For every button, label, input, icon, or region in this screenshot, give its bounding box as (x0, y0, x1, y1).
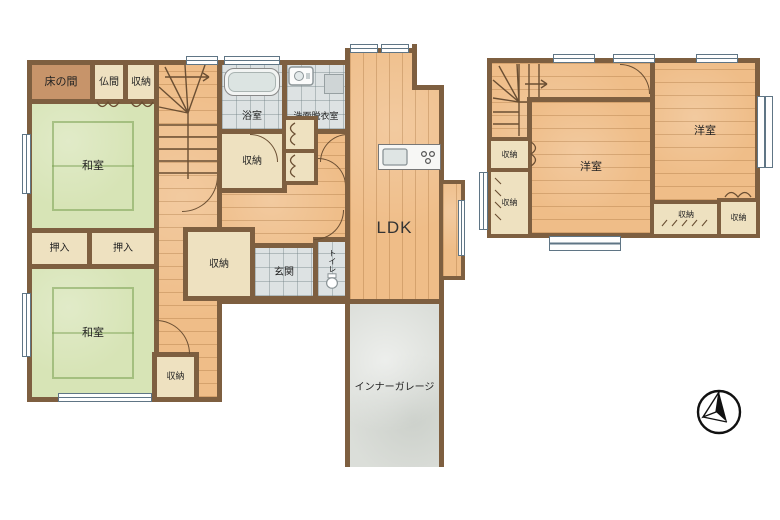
toilet-label: トイレ (327, 249, 336, 273)
room-tokonoma: 床の間 (27, 60, 95, 104)
storage-hall-label: 収納 (209, 259, 229, 270)
garage-label: インナーガレージ (355, 382, 435, 393)
tokonoma-label: 床の間 (45, 76, 78, 88)
oshiire-1-label: 押入 (50, 243, 70, 254)
staircase-1f (157, 63, 219, 179)
storage-2f-c-label: 収納 (678, 211, 694, 220)
room-washitsu-1: 和室 (27, 99, 159, 233)
hanger-pipe-icon (660, 219, 712, 227)
bifold-door-icon (724, 188, 752, 198)
kitchen-sink-icon (382, 148, 408, 166)
bay-window-right-2f (757, 96, 773, 168)
room-storage-hall: 収納 (183, 227, 255, 301)
room-storage-sw: 収納 (152, 352, 199, 402)
window (613, 54, 655, 63)
storage-top-label: 収納 (131, 77, 151, 88)
butsuma-label: 仏間 (99, 77, 119, 88)
window (186, 56, 218, 65)
storage-2f-d-label: 収納 (731, 214, 747, 223)
window (458, 200, 465, 256)
bay-window-bottom-2f (549, 236, 621, 251)
ldk-label: LDK (376, 219, 412, 238)
window (224, 56, 280, 65)
room-bedroom-right: 洋室 (650, 58, 760, 205)
ldk-notch (412, 44, 444, 90)
storage-sw-label: 収納 (166, 372, 184, 382)
storage-2f-a-label: 収納 (502, 151, 518, 160)
north-arrow-compass-icon (693, 386, 745, 438)
genkan-label: 玄関 (274, 267, 294, 278)
room-washitsu-2: 和室 (27, 264, 159, 402)
room-oshiire-2: 押入 (87, 228, 159, 269)
bifold-door-icon (286, 154, 296, 178)
room-storage-top: 収納 (123, 60, 159, 104)
bedroom-right-label: 洋室 (694, 125, 716, 137)
window (350, 44, 378, 53)
oshiire-2-label: 押入 (113, 243, 133, 254)
window (696, 54, 738, 63)
window (22, 134, 31, 194)
room-oshiire-1: 押入 (27, 228, 92, 269)
room-storage-2f-c: 収納 (650, 200, 722, 238)
window (381, 44, 409, 53)
washitsu-2-label: 和室 (82, 327, 104, 339)
washing-machine-pan-icon (324, 74, 344, 94)
bifold-door-icon (96, 101, 120, 111)
room-genkan: 玄関 (250, 243, 318, 301)
window (553, 54, 595, 63)
room-bedroom-left: 洋室 (527, 97, 655, 238)
bedroom-left-label: 洋室 (580, 161, 602, 173)
window (22, 293, 31, 357)
toilet-bowl-icon (325, 273, 339, 289)
bathroom-label: 浴室 (242, 111, 262, 122)
bathtub-icon (224, 68, 280, 96)
sink-icon (288, 66, 314, 86)
bifold-door-icon (530, 141, 540, 167)
stove-burners-icon (418, 148, 438, 166)
hanger-pipe-icon (493, 176, 503, 228)
window (58, 393, 152, 402)
floor-plan-canvas: 床の間 仏間 収納 和室 押入 押入 和室 収納 浴室 洗面脱衣室 (0, 0, 780, 520)
bifold-door-icon (286, 122, 296, 146)
storage-2f-b-label: 収納 (502, 199, 518, 208)
washitsu-1-label: 和室 (82, 160, 104, 172)
bifold-door-icon (130, 101, 154, 111)
room-storage-2f-d: 収納 (717, 198, 760, 238)
room-garage: インナーガレージ (345, 299, 444, 467)
window (479, 172, 488, 230)
